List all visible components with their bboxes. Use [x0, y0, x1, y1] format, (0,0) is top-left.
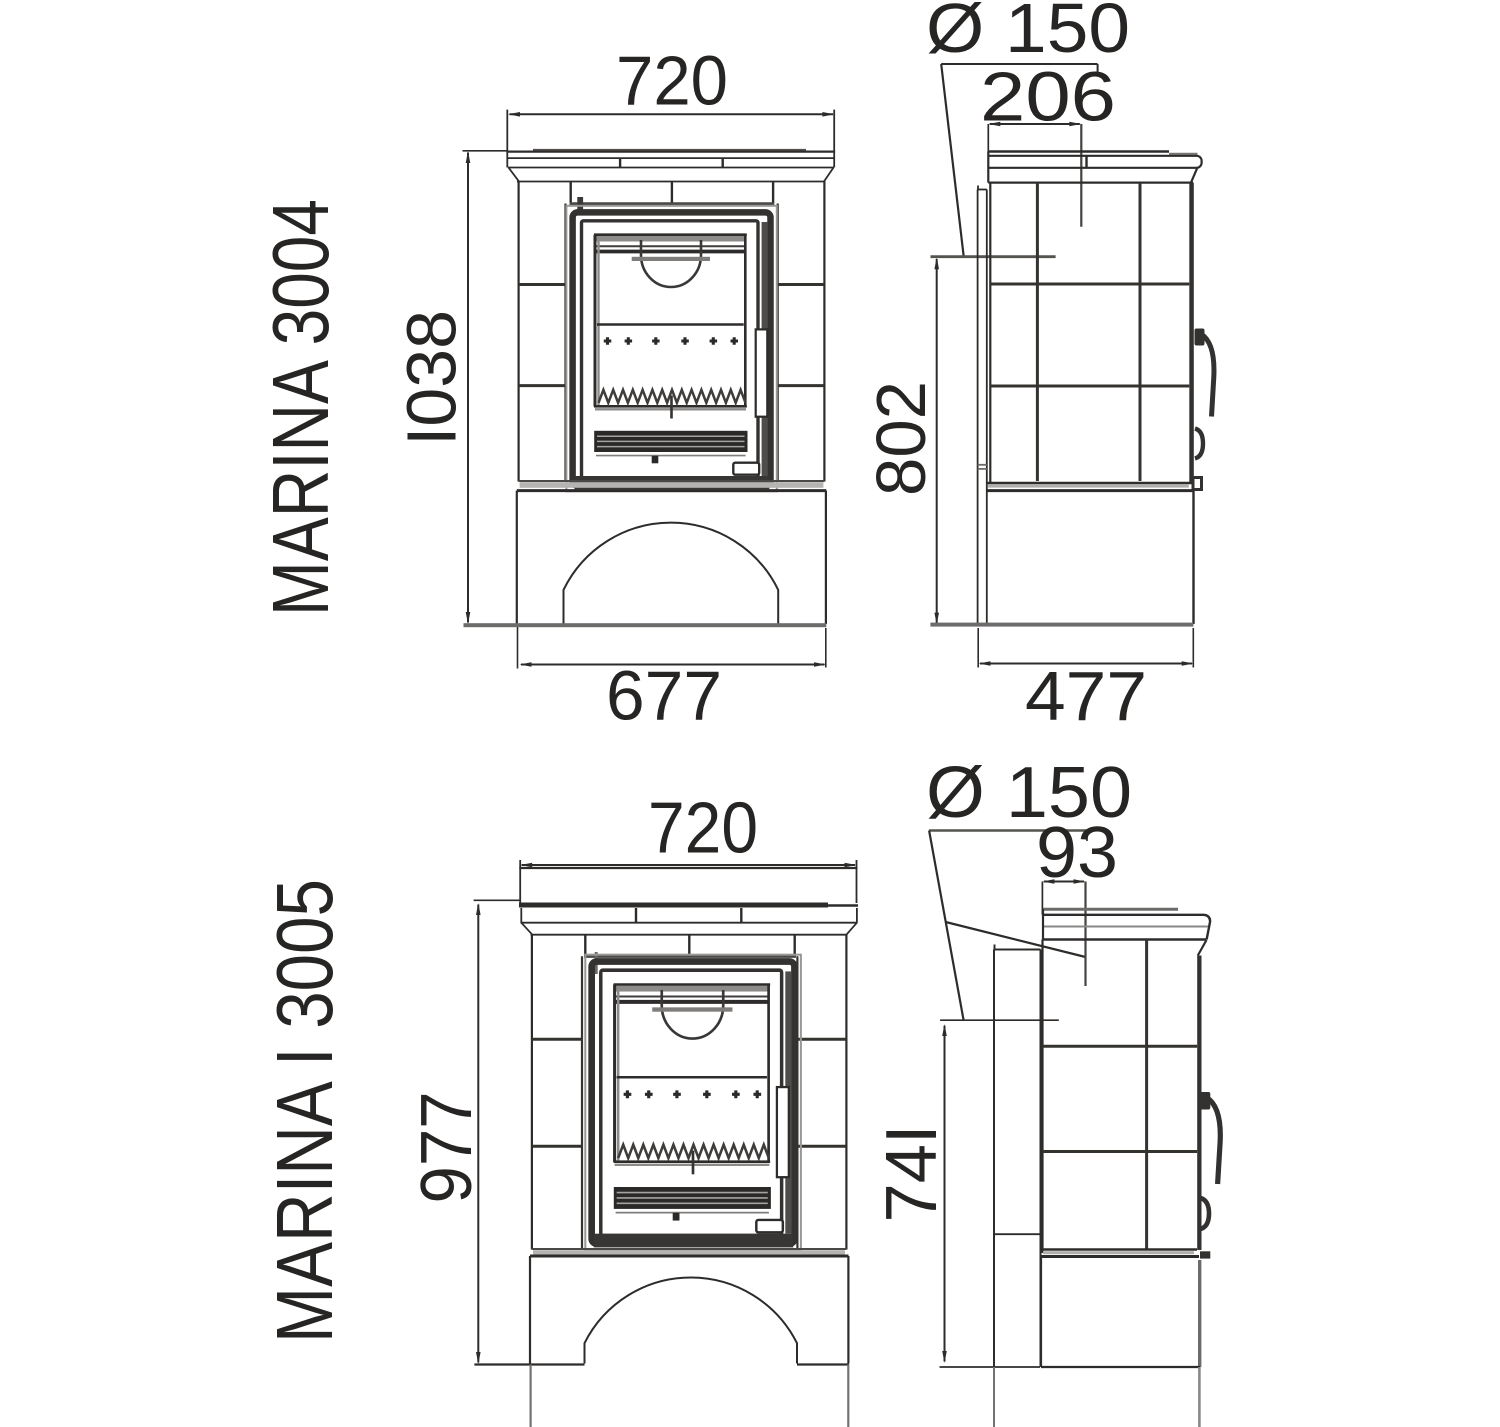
svg-text:720: 720: [648, 789, 758, 869]
svg-text:74I: 74I: [872, 1125, 952, 1223]
svg-text:802: 802: [862, 381, 940, 496]
svg-text:720: 720: [616, 42, 728, 120]
svg-text:MARINA I 3005: MARINA I 3005: [260, 879, 349, 1343]
svg-text:677: 677: [606, 657, 722, 735]
svg-text:I038: I038: [393, 310, 471, 446]
svg-text:977: 977: [407, 1092, 487, 1204]
svg-text:477: 477: [1025, 657, 1147, 735]
svg-text:MARINA 3004: MARINA 3004: [256, 199, 345, 616]
